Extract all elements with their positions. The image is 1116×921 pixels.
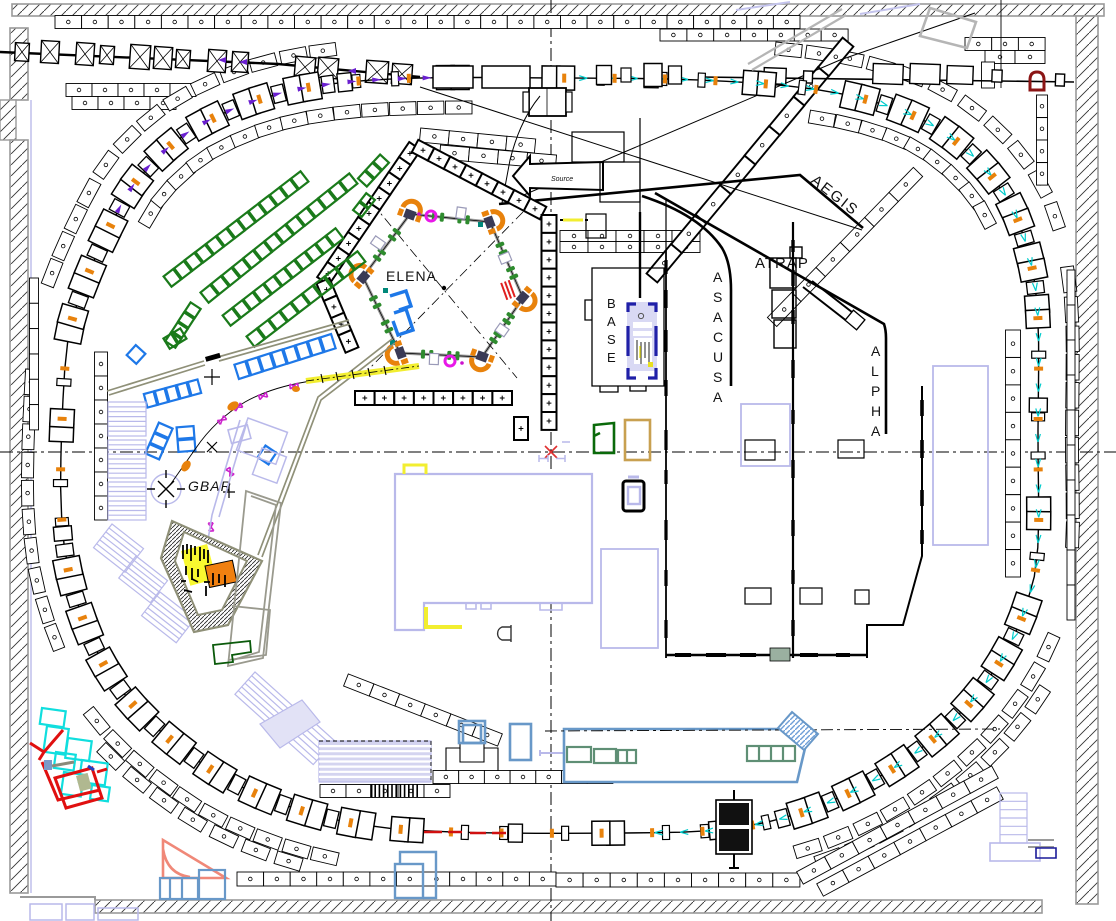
svg-text:S: S	[607, 332, 616, 347]
svg-text:A: A	[713, 269, 723, 285]
svg-text:P: P	[871, 383, 880, 399]
svg-text:L: L	[871, 363, 879, 379]
svg-text:A: A	[871, 343, 881, 359]
svg-text:A: A	[607, 314, 616, 329]
svg-text:A: A	[713, 309, 723, 325]
svg-text:A: A	[713, 389, 723, 405]
svg-text:C: C	[713, 329, 723, 345]
svg-text:S: S	[713, 289, 722, 305]
svg-text:B: B	[607, 296, 616, 311]
svg-text:E: E	[607, 350, 616, 365]
svg-text:H: H	[871, 403, 881, 419]
svg-text:S: S	[713, 369, 722, 385]
svg-text:Source: Source	[551, 176, 573, 183]
svg-text:ELENA: ELENA	[386, 268, 437, 284]
svg-text:A: A	[871, 423, 881, 439]
svg-text:U: U	[713, 349, 723, 365]
